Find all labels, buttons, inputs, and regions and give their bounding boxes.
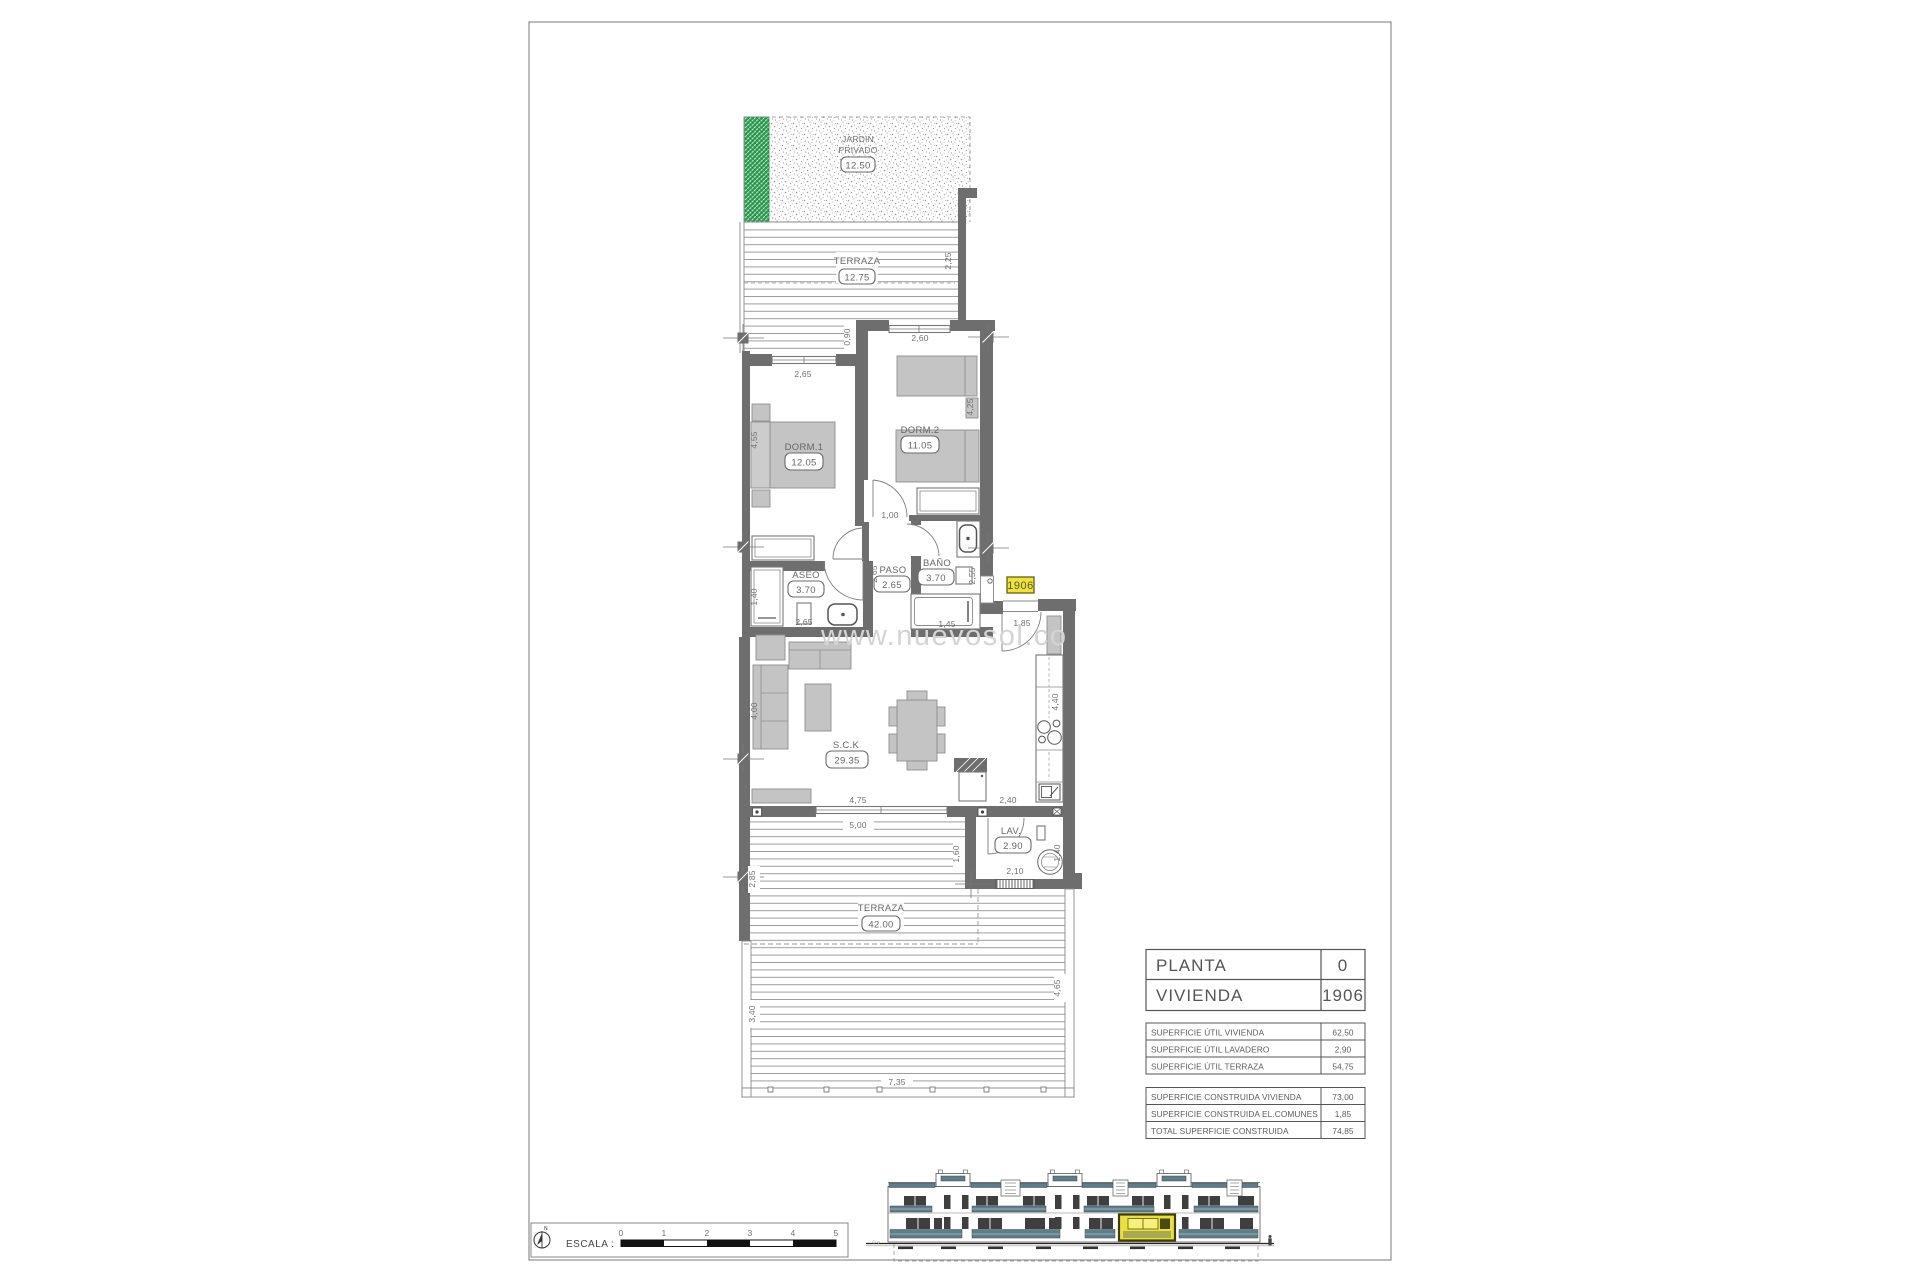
svg-text:1,40: 1,40 (1052, 844, 1062, 861)
svg-text:74,85: 74,85 (1332, 1126, 1354, 1136)
svg-text:62,50: 62,50 (1332, 1028, 1354, 1038)
svg-text:2,65: 2,65 (795, 617, 812, 627)
svg-text:2,10: 2,10 (1006, 866, 1023, 876)
svg-text:3.70: 3.70 (796, 585, 816, 596)
svg-text:TOTAL SUPERFICIE CONSTRUIDA: TOTAL SUPERFICIE CONSTRUIDA (1151, 1126, 1289, 1136)
svg-text:PRIVADO: PRIVADO (838, 145, 877, 155)
svg-text:PLANTA: PLANTA (1156, 956, 1227, 975)
svg-text:4,65: 4,65 (1052, 979, 1062, 996)
svg-text:SUPERFICIE CONSTRUIDA VIVIENDA: SUPERFICIE CONSTRUIDA VIVIENDA (1151, 1092, 1302, 1102)
svg-text:11.05: 11.05 (908, 441, 933, 452)
svg-text:TERRAZA: TERRAZA (858, 903, 905, 914)
svg-text:4: 4 (791, 1228, 796, 1238)
svg-text:DORM.2: DORM.2 (901, 425, 940, 436)
svg-text:42.00: 42.00 (868, 920, 893, 931)
svg-text:0: 0 (1338, 956, 1348, 975)
svg-text:54,75: 54,75 (1332, 1062, 1354, 1072)
svg-text:2,40: 2,40 (999, 795, 1016, 805)
svg-text:12.50: 12.50 (845, 161, 870, 172)
svg-text:1,85: 1,85 (1335, 1109, 1352, 1119)
svg-text:1,60: 1,60 (951, 845, 961, 862)
svg-text:N: N (544, 1226, 548, 1232)
svg-text:ASEO: ASEO (792, 570, 820, 581)
svg-text:DORM.1: DORM.1 (785, 442, 824, 453)
svg-text:29.35: 29.35 (834, 756, 859, 767)
svg-text:3.70: 3.70 (926, 573, 946, 584)
svg-text:2,85: 2,85 (747, 870, 757, 887)
svg-text:ESCALA :: ESCALA : (566, 1239, 614, 1250)
svg-text:www.nuevosol.co: www.nuevosol.co (820, 620, 1068, 652)
svg-text:1906: 1906 (1322, 986, 1364, 1005)
svg-text:1: 1 (662, 1228, 667, 1238)
svg-text:VIVIENDA: VIVIENDA (1156, 986, 1243, 1005)
svg-text:2.90: 2.90 (1003, 841, 1023, 852)
svg-text:1906: 1906 (1007, 580, 1033, 592)
svg-text:2,65: 2,65 (869, 565, 879, 582)
svg-text:5: 5 (834, 1228, 839, 1238)
svg-text:SUPERFICIE ÚTIL TERRAZA: SUPERFICIE ÚTIL TERRAZA (1151, 1062, 1264, 1072)
svg-text:0,90: 0,90 (842, 328, 852, 345)
svg-text:5,00: 5,00 (849, 820, 866, 830)
svg-text:0: 0 (619, 1228, 624, 1238)
svg-text:2,60: 2,60 (911, 333, 928, 343)
svg-text:2,90: 2,90 (1335, 1045, 1352, 1055)
svg-text:4,55: 4,55 (749, 431, 759, 448)
svg-text:PASO: PASO (880, 565, 907, 576)
svg-text:4,25: 4,25 (965, 398, 975, 415)
svg-text:2,55: 2,55 (967, 567, 977, 584)
svg-text:73,00: 73,00 (1332, 1092, 1354, 1102)
svg-text:TERRAZA: TERRAZA (834, 256, 881, 267)
svg-text:2.65: 2.65 (882, 580, 902, 591)
svg-text:7,35: 7,35 (888, 1077, 905, 1087)
svg-text:S.C.K: S.C.K (833, 740, 860, 751)
svg-text:4,00: 4,00 (749, 702, 759, 719)
svg-text:12.75: 12.75 (844, 273, 869, 284)
svg-text:LAV.: LAV. (1001, 826, 1021, 837)
svg-text:1,00: 1,00 (881, 510, 898, 520)
svg-text:3: 3 (748, 1228, 753, 1238)
svg-text:SUPERFICIE CONSTRUIDA EL.COMUN: SUPERFICIE CONSTRUIDA EL.COMUNES (1151, 1109, 1318, 1119)
svg-text:1,40: 1,40 (749, 588, 759, 605)
svg-text:3,40: 3,40 (747, 1005, 757, 1022)
svg-text:SUPERFICIE ÚTIL LAVADERO: SUPERFICIE ÚTIL LAVADERO (1151, 1045, 1270, 1055)
svg-text:JARDIN: JARDIN (842, 134, 874, 144)
svg-text:12.05: 12.05 (791, 458, 816, 469)
svg-text:2: 2 (705, 1228, 710, 1238)
svg-text:2,65: 2,65 (794, 369, 811, 379)
svg-text:4,75: 4,75 (849, 795, 866, 805)
svg-text:SUPERFICIE ÚTIL VIVIENDA: SUPERFICIE ÚTIL VIVIENDA (1151, 1028, 1265, 1038)
svg-text:2,25: 2,25 (943, 252, 953, 269)
svg-text:4,40: 4,40 (1050, 693, 1060, 710)
svg-text:BAÑO: BAÑO (923, 558, 951, 569)
